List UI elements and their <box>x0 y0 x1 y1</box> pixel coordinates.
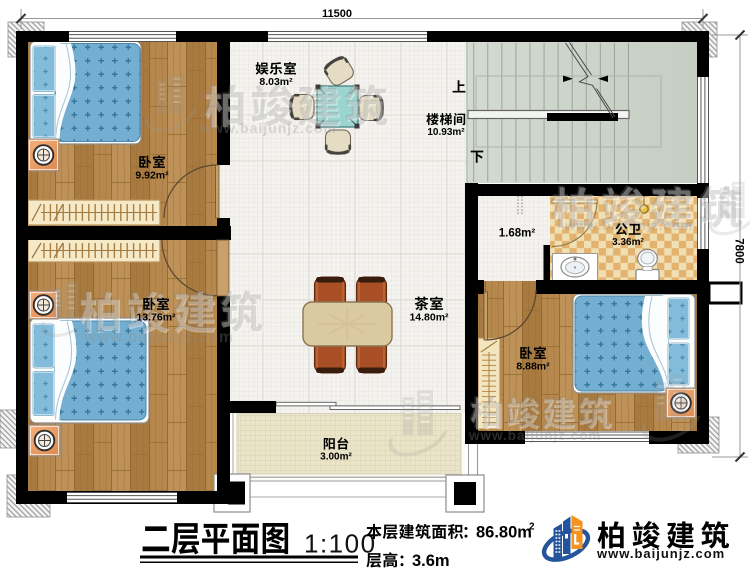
svg-text:8.88m²: 8.88m² <box>516 361 550 373</box>
svg-text:86.80m: 86.80m <box>476 524 532 542</box>
svg-text:1.68m²: 1.68m² <box>499 228 536 240</box>
svg-text:www.baijunjz.com: www.baijunjz.com <box>468 428 602 443</box>
svg-text:www.baijunjz.com: www.baijunjz.com <box>596 546 725 561</box>
svg-text:3.00m²: 3.00m² <box>320 452 352 463</box>
svg-text:11500: 11500 <box>322 8 352 20</box>
svg-text:10.93m²: 10.93m² <box>427 127 465 138</box>
svg-text:www.baijunjz.com: www.baijunjz.com <box>564 218 693 233</box>
svg-text:www.baijunjz.com: www.baijunjz.com <box>83 329 234 346</box>
svg-text:14.80m²: 14.80m² <box>409 312 449 324</box>
svg-text:2: 2 <box>529 522 535 533</box>
svg-text:1:100: 1:100 <box>304 529 377 559</box>
svg-text:8.03m²: 8.03m² <box>259 76 293 88</box>
svg-text:7800: 7800 <box>733 238 745 264</box>
svg-text:9.92m²: 9.92m² <box>135 170 169 182</box>
svg-text:13.76m²: 13.76m² <box>136 312 176 324</box>
svg-text:3.6m: 3.6m <box>412 552 450 570</box>
svg-text:www.baijunjz.com: www.baijunjz.com <box>199 120 337 136</box>
svg-text:3.36m²: 3.36m² <box>612 237 644 248</box>
